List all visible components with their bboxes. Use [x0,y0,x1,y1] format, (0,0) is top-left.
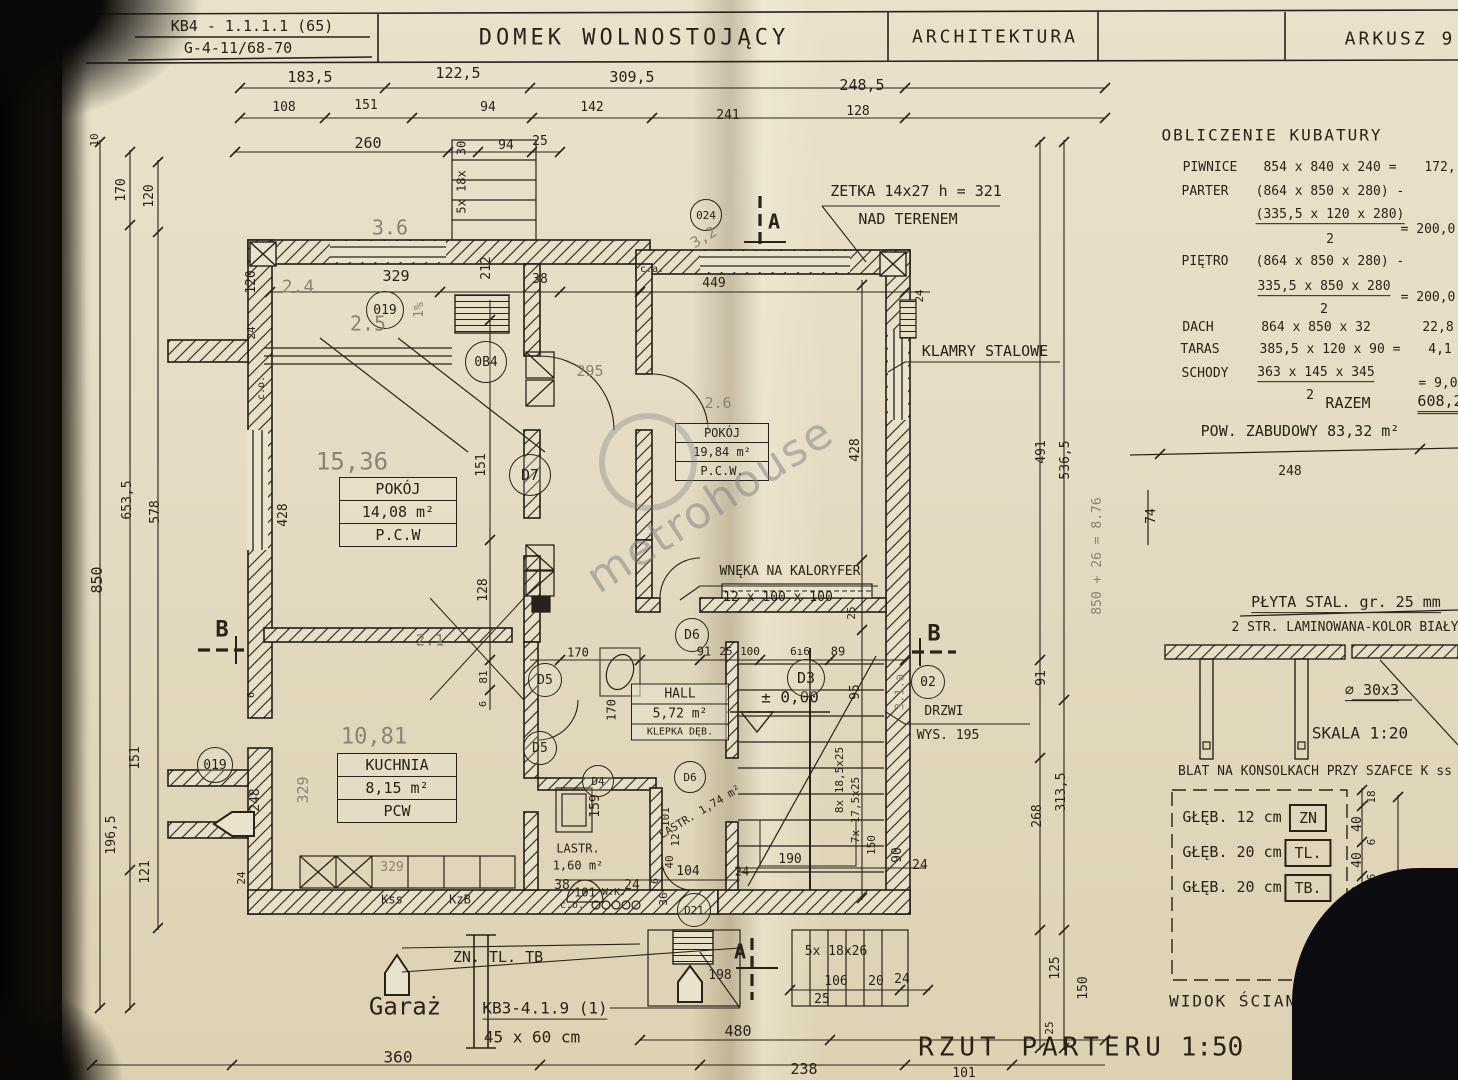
stair-note: 5x 18x [456,170,469,213]
dim-label: 40 [1351,852,1365,868]
kubatura-schody: SCHODY [1182,367,1229,381]
dim-label: 480 [724,1024,751,1040]
dim-label: 40 [664,855,676,868]
dim-label: 151 [354,99,377,113]
dim-label: 106 [824,975,847,989]
pencil-note: 2.1 [416,633,445,650]
dim-label: 196,5 [105,815,119,854]
depth-row-3: GŁĘB. 20 cm [1182,880,1281,896]
dim-label: 12 [670,833,682,846]
door-mark-d21: D21 [677,893,711,927]
dim-label: 91 [697,646,711,659]
tag-tb: TB. [1284,874,1331,902]
dim-label: 212 [480,256,494,279]
door-mark-d5: D5 [528,663,562,697]
room-box-pokoj1: POKÓJ 14,08 m² P.C.W [339,477,457,547]
kubatura-razem: RAZEM [1325,396,1370,412]
room-floor: P.C.W [340,524,456,546]
dim-label: 428 [849,438,863,461]
fixture-101: 101 [574,887,596,900]
kubatura-dach-expr: 864 x 850 x 32 [1261,321,1371,335]
stair-note: 8x 18,5x25 [834,747,846,813]
note-radiator-niche: WNĘKA NA KALORYFER [720,565,861,579]
dim-label: 170 [567,647,589,660]
note-kb3-size: 45 x 60 cm [484,1030,580,1047]
mark-0b4: 0B4 [465,341,507,383]
garage-label: Garaż [369,994,441,1019]
kubatura-title: OBLICZENIE KUBATURY [1161,128,1382,145]
room-name: POKÓJ [340,478,456,501]
detail-plate-note: PŁYTA STAL. gr. 25 mm [1251,595,1441,613]
dim-label: 121 [139,860,153,883]
dim-label: 151 [129,746,143,769]
photo-dark-corner-bl [0,980,150,1080]
dim-label: 313,5 [1055,772,1069,811]
dim-label: 89 [831,646,845,659]
built-area: POW. ZABUDOWY 83,32 m² [1201,424,1400,440]
dim-label: 159 [589,794,603,817]
dim-label: 491 [1035,440,1049,463]
dim-label: 190 [778,853,801,867]
pencil-note: 295 [576,364,603,380]
kubatura-schody-den: 2 [1306,389,1314,403]
detail-diameter: ⌀ 30x3 [1345,683,1399,701]
plan-title: RZUT PARTERU [918,1034,1166,1061]
dim-label: 360 [384,1050,413,1067]
kubatura-taras: TARAS [1180,343,1219,357]
dim-label: 24 [914,289,926,302]
depth-row-2: GŁĘB. 20 cm [1182,845,1281,861]
dim-label: 24 [735,866,749,879]
stair-note: 7x 17,5x25 [850,777,862,843]
dim-label: 25 [1044,1021,1056,1034]
dim-label: 428 [277,503,291,526]
pencil-note: 1% [413,302,427,318]
dim-label: 248 [249,788,263,811]
dim-label: 25 [532,135,548,149]
dim-label: 653,5 [121,480,135,519]
room-lastriko-1: LASTR. [556,843,599,856]
stair-note: 5x 18x26 [805,945,868,959]
note-zn-tl-tb: ZN. TL. TB [453,950,543,966]
cabinet-mark-kss: Kss [381,894,403,907]
kubatura-parter: PARTER [1182,185,1229,199]
kubatura-pietro-den: 2 [1320,303,1328,317]
kubatura-piwnice: PIWNICE [1183,161,1238,175]
room-name: HALL [632,685,728,705]
room-area: 8,15 m² [338,777,456,800]
kubatura-dach: DACH [1182,321,1213,335]
dim-label: 850 [90,566,106,593]
level-mark [730,712,830,732]
room-floor: KLEPKA DĘB. [632,725,728,740]
detail-counter-note: BLAT NA KONSOLKACH PRZY SZAFCE K ss [1178,765,1452,779]
dim-label: 24 [894,973,910,987]
dim-label: 101 [952,1067,975,1080]
dim-label: 24 [912,859,928,873]
door-mark-d4: D4 [582,765,614,797]
mark-019: 019 [197,747,233,783]
room-lastriko-1-area: 1,60 m² [553,860,604,873]
dim-label: 108 [272,101,295,115]
dim-label: 20 [868,975,884,989]
section-letter-b: B [927,622,940,645]
dim-label: 183,5 [287,70,332,86]
dim-label: 74 [1145,508,1159,524]
dim-label: 24 [246,326,258,339]
dim-label: 100 [740,646,760,658]
dim-label: 101 [660,807,672,827]
pencil-note: 15,36 [316,449,388,474]
kubatura-parter-res: = 200,0 [1401,223,1456,237]
dim-label: 198 [708,969,731,983]
dim-label: 24 [236,871,248,884]
dim-label: 241 [716,109,739,123]
kubatura-schody-num: 363 x 145 x 345 [1257,366,1374,382]
door-mark-d6: D6 [674,761,706,793]
dim-label: 120 [143,184,157,207]
dim-label: 329 [382,269,409,285]
section-letter-a: A [734,942,746,963]
pencil-note: 329 [296,776,312,803]
mark-02: 02 [911,665,945,699]
kubatura-piwnice-res: 172, [1424,161,1455,175]
floor-plan-photo: KB4 - 1.1.1.1 (65) G-4-11/68-70 DOMEK WO… [0,0,1458,1080]
kubatura-taras-expr: 385,5 x 120 x 90 = [1260,343,1401,357]
note-door-height: WYS. 195 [917,729,980,743]
room-floor: PCW [338,800,456,822]
dim-label: 309,5 [609,70,654,86]
kubatura-dach-res: 22,8 [1422,321,1453,335]
kubatura-razem-res: 608,2 [1417,394,1458,414]
dim-label: 6 [479,701,490,707]
dim-label: 248,5 [839,78,884,94]
kubatura-schody-res: = 9,0 [1418,377,1457,391]
note-co: c.o. [560,901,584,912]
pencil-note: 2.6 [704,396,731,412]
dim-label: 38 [554,879,570,893]
dim-label: 125 [1049,956,1063,979]
dim-label: 6 [247,692,258,698]
photo-dark-left-edge [0,0,86,1080]
dim-label: 40 [1351,816,1365,832]
kubatura-taras-res: 4,1 [1428,343,1451,357]
cabinet-mark-kzb: KzB [449,894,471,907]
room-box-kuchnia: KUCHNIA 8,15 m² PCW [337,753,457,823]
kubatura-parter-expr: (864 x 850 x 280) - [1256,185,1405,199]
section-letter-b: B [215,618,228,641]
dim-label: 151 [475,453,489,476]
kubatura-parter-den: 2 [1326,233,1334,247]
dim-label: 578 [149,500,163,523]
kitchen-cabinets [300,856,515,888]
door-mark-d7: D7 [509,454,551,496]
pencil-note: 2.5 [350,314,386,335]
depth-row-1: GŁĘB. 12 cm [1182,810,1281,826]
dim-label: 449 [702,277,725,291]
pencil-note: 329 [380,861,403,875]
tag-tl: TL. [1284,839,1331,867]
dim-label: 150 [866,835,878,855]
dim-label: 238 [790,1062,817,1078]
pencil-note: 10,81 [341,725,407,748]
drawing-title: DOMEK WOLNOSTOJĄCY [479,26,789,49]
room-box-hall: HALL 5,72 m² KLEPKA DĘB. [631,684,729,741]
dim-label: 95 [849,684,863,700]
photo-dark-corner-tl [0,0,240,150]
pencil-note: 2.4 [282,279,315,298]
dim-label: 170 [115,178,129,201]
dim-label: 25 [814,993,830,1007]
dim-label: 536,5 [1059,440,1073,479]
kubatura-pietro: PIĘTRO [1182,255,1229,269]
dim-label: 104 [676,865,699,879]
door-mark-d5: D5 [523,731,557,765]
kubatura-pietro-expr: (864 x 850 x 280) - [1256,255,1405,269]
dim-label: 90 [891,847,905,863]
dim-label: 25 [846,606,858,619]
dim-label: 6 [1366,839,1378,846]
dim-label: 150 [1077,976,1091,999]
dim-label: 25 [719,646,732,658]
pencil-note: 850 + 26 = 8.76 [1091,497,1105,614]
plan-scale: 1:50 [1181,1034,1244,1061]
room-area: 5,72 m² [632,705,728,725]
note-radiator-niche-size: 12 x 100 x 100 [723,591,833,605]
dim-label: 18 [1366,790,1378,803]
pencil-note: 3.6 [372,218,408,239]
note-co: c.o. [257,376,268,400]
dim-label: 268 [1031,804,1045,827]
dim-label: 94 [498,139,514,153]
tag-zn: ZN [1289,804,1327,832]
kubatura-pietro-num: 335,5 x 850 x 280 [1257,280,1390,296]
discipline-label: ARCHITEKTURA [912,29,1078,48]
sheet-label: ARKUSZ 9 [1345,31,1456,50]
note-door: DRZWI [924,705,963,719]
kubatura-parter-num: (335,5 x 120 x 280) [1256,208,1405,224]
dim-label: 128 [477,578,491,601]
dim-label: 248 [1278,465,1301,479]
dim-label: 36 [658,892,670,905]
dim-label: 128 [846,105,869,119]
dim-label: 30 [456,141,469,155]
note-steel-clamps: KLAMRY STALOWE [922,344,1048,360]
dim-label: 81 [478,670,490,683]
room-area: 14,08 m² [340,501,456,524]
pencil-note: 3.1.a [894,674,907,710]
room-name: KUCHNIA [338,754,456,777]
plan-linework [0,0,1458,1080]
detail-laminate-note: 2 STR. LAMINOWANA-KOLOR BIAŁY [1232,621,1458,635]
dim-label: 122,5 [435,66,480,82]
section-letter-a: A [768,212,780,233]
dim-label: 120 [245,270,259,293]
kubatura-pietro-res: = 200,0 [1401,291,1456,305]
dim-label: 6 [651,878,662,884]
dim-label: 94 [480,101,496,115]
note-wk: W.K. [602,888,626,899]
dim-label: 38 [532,273,548,287]
note-ca: c.a. [640,265,664,276]
kubatura-piwnice-expr: 854 x 840 x 240 = [1263,161,1396,175]
dim-label: 24 [624,879,640,893]
dim-label: 142 [580,101,603,115]
dim-label: 260 [354,136,381,152]
dim-label: 170 [606,699,619,721]
door-mark-d3: D3 [787,659,825,697]
detail-scale: SKALA 1:20 [1312,726,1408,743]
dim-label: 6ı6 [790,646,810,658]
dim-label: 91 [1035,670,1049,686]
note-zetka: ZETKA 14x27 h = 321 [830,184,1002,200]
note-kb3: KB3-4.1.9 (1) [482,1001,607,1020]
note-zetka2: NAD TERENEM [858,212,957,228]
